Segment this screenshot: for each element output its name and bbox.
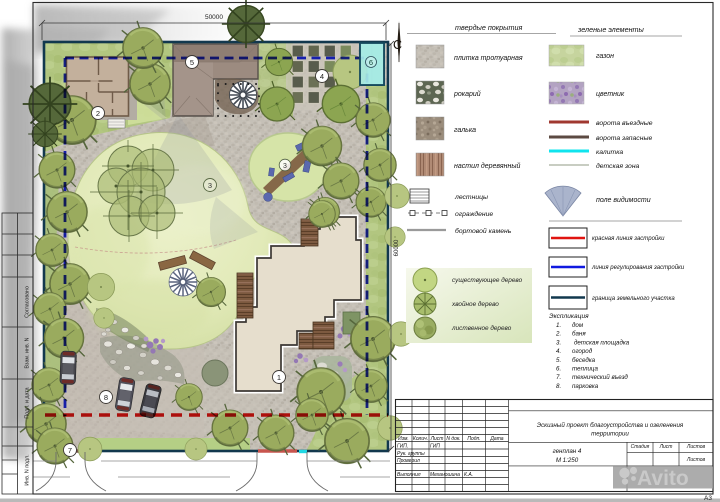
svg-text:7: 7 xyxy=(68,446,72,455)
svg-text:2.: 2. xyxy=(555,331,561,338)
svg-text:баня: баня xyxy=(572,331,586,338)
svg-text:настил деревянный: настил деревянный xyxy=(454,162,521,170)
svg-text:дом: дом xyxy=(572,322,584,329)
svg-text:Avito: Avito xyxy=(637,467,689,490)
svg-text:1: 1 xyxy=(277,373,281,382)
svg-text:ограждение: ограждение xyxy=(455,210,493,218)
svg-text:парковка: парковка xyxy=(572,383,599,390)
svg-text:Инв. N подл.: Инв. N подл. xyxy=(25,454,31,485)
svg-text:3.: 3. xyxy=(556,339,561,346)
svg-text:цветник: цветник xyxy=(596,91,625,98)
svg-text:5.: 5. xyxy=(556,357,561,364)
svg-text:Механошина: Механошина xyxy=(430,472,460,478)
svg-text:генплан 4: генплан 4 xyxy=(553,448,582,455)
svg-text:Дата: Дата xyxy=(489,436,503,442)
svg-text:N док.: N док. xyxy=(446,436,460,442)
svg-text:поле видимости: поле видимости xyxy=(596,196,651,204)
svg-text:детская зона: детская зона xyxy=(596,162,640,170)
svg-text:газон: газон xyxy=(596,53,614,60)
svg-text:технический въезд: технический въезд xyxy=(572,374,628,381)
svg-text:4: 4 xyxy=(320,72,324,81)
svg-text:детская площадка: детская площадка xyxy=(574,339,630,346)
svg-text:3: 3 xyxy=(283,163,287,170)
svg-text:беседка: беседка xyxy=(572,357,596,364)
svg-text:2: 2 xyxy=(96,109,100,118)
svg-text:Подп.: Подп. xyxy=(467,436,480,442)
svg-text:бортовой камень: бортовой камень xyxy=(455,227,512,235)
svg-text:6.: 6. xyxy=(556,366,561,373)
svg-text:калитка: калитка xyxy=(596,149,623,156)
svg-text:Лист: Лист xyxy=(659,444,673,450)
svg-text:Экспликация: Экспликация xyxy=(549,313,589,320)
svg-text:твердые покрытия: твердые покрытия xyxy=(455,23,522,32)
svg-text:Рук. группы: Рук. группы xyxy=(397,451,425,457)
svg-text:Листов: Листов xyxy=(686,444,706,450)
svg-text:Подп. и дата: Подп. и дата xyxy=(25,387,31,418)
svg-text:5: 5 xyxy=(190,58,194,67)
svg-text:красная линия застройки: красная линия застройки xyxy=(592,235,665,242)
svg-text:граница земельного участка: граница земельного участка xyxy=(592,296,675,302)
svg-text:7.: 7. xyxy=(556,374,561,381)
svg-text:огород: огород xyxy=(572,348,593,355)
svg-text:М 1:250: М 1:250 xyxy=(556,457,579,464)
svg-text:60000: 60000 xyxy=(394,239,400,256)
svg-text:лестницы: лестницы xyxy=(454,194,488,201)
svg-text:8.: 8. xyxy=(556,383,561,390)
svg-text:Эскизный проект благоустройств: Эскизный проект благоустройства и озелен… xyxy=(537,422,684,429)
svg-text:Стадия: Стадия xyxy=(631,444,650,450)
svg-text:плитка тротуарная: плитка тротуарная xyxy=(454,55,523,62)
svg-text:4.: 4. xyxy=(556,348,561,355)
svg-text:А3: А3 xyxy=(704,495,712,502)
svg-text:Взам. инв. N: Взам. инв. N xyxy=(25,337,31,368)
svg-text:теплица: теплица xyxy=(572,366,599,373)
svg-text:6: 6 xyxy=(369,58,373,67)
svg-text:C: C xyxy=(393,38,402,52)
svg-text:рокарий: рокарий xyxy=(453,90,481,98)
svg-text:3: 3 xyxy=(208,181,212,190)
svg-text:Изм.: Изм. xyxy=(398,436,409,442)
svg-text:8: 8 xyxy=(104,393,108,402)
svg-text:1.: 1. xyxy=(556,322,561,329)
svg-text:территории: территории xyxy=(591,431,629,438)
svg-text:ворота запасные: ворота запасные xyxy=(596,135,652,142)
svg-text:ворота въездные: ворота въездные xyxy=(596,119,653,127)
svg-text:хвойное дерево: хвойное дерево xyxy=(451,300,499,308)
svg-text:Проверил: Проверил xyxy=(397,458,420,464)
svg-text:Лист: Лист xyxy=(430,436,444,442)
svg-text:50000: 50000 xyxy=(205,14,223,21)
svg-text:существующее дерево: существующее дерево xyxy=(452,276,523,284)
svg-text:ГИП.: ГИП. xyxy=(397,444,408,450)
svg-text:Согласовано: Согласовано xyxy=(25,286,31,318)
svg-text:К.А.: К.А. xyxy=(464,472,473,478)
svg-text:Выполнил: Выполнил xyxy=(397,472,421,478)
svg-text:лиственное дерево: лиственное дерево xyxy=(451,324,512,332)
svg-text:зеленые элементы: зеленые элементы xyxy=(577,25,645,34)
svg-text:галька: галька xyxy=(454,127,476,134)
svg-text:Колич.: Колич. xyxy=(413,436,428,442)
svg-text:ГИП: ГИП xyxy=(430,444,440,450)
svg-text:Листов: Листов xyxy=(686,457,706,463)
svg-text:линия регулирования застройки: линия регулирования застройки xyxy=(591,264,685,271)
